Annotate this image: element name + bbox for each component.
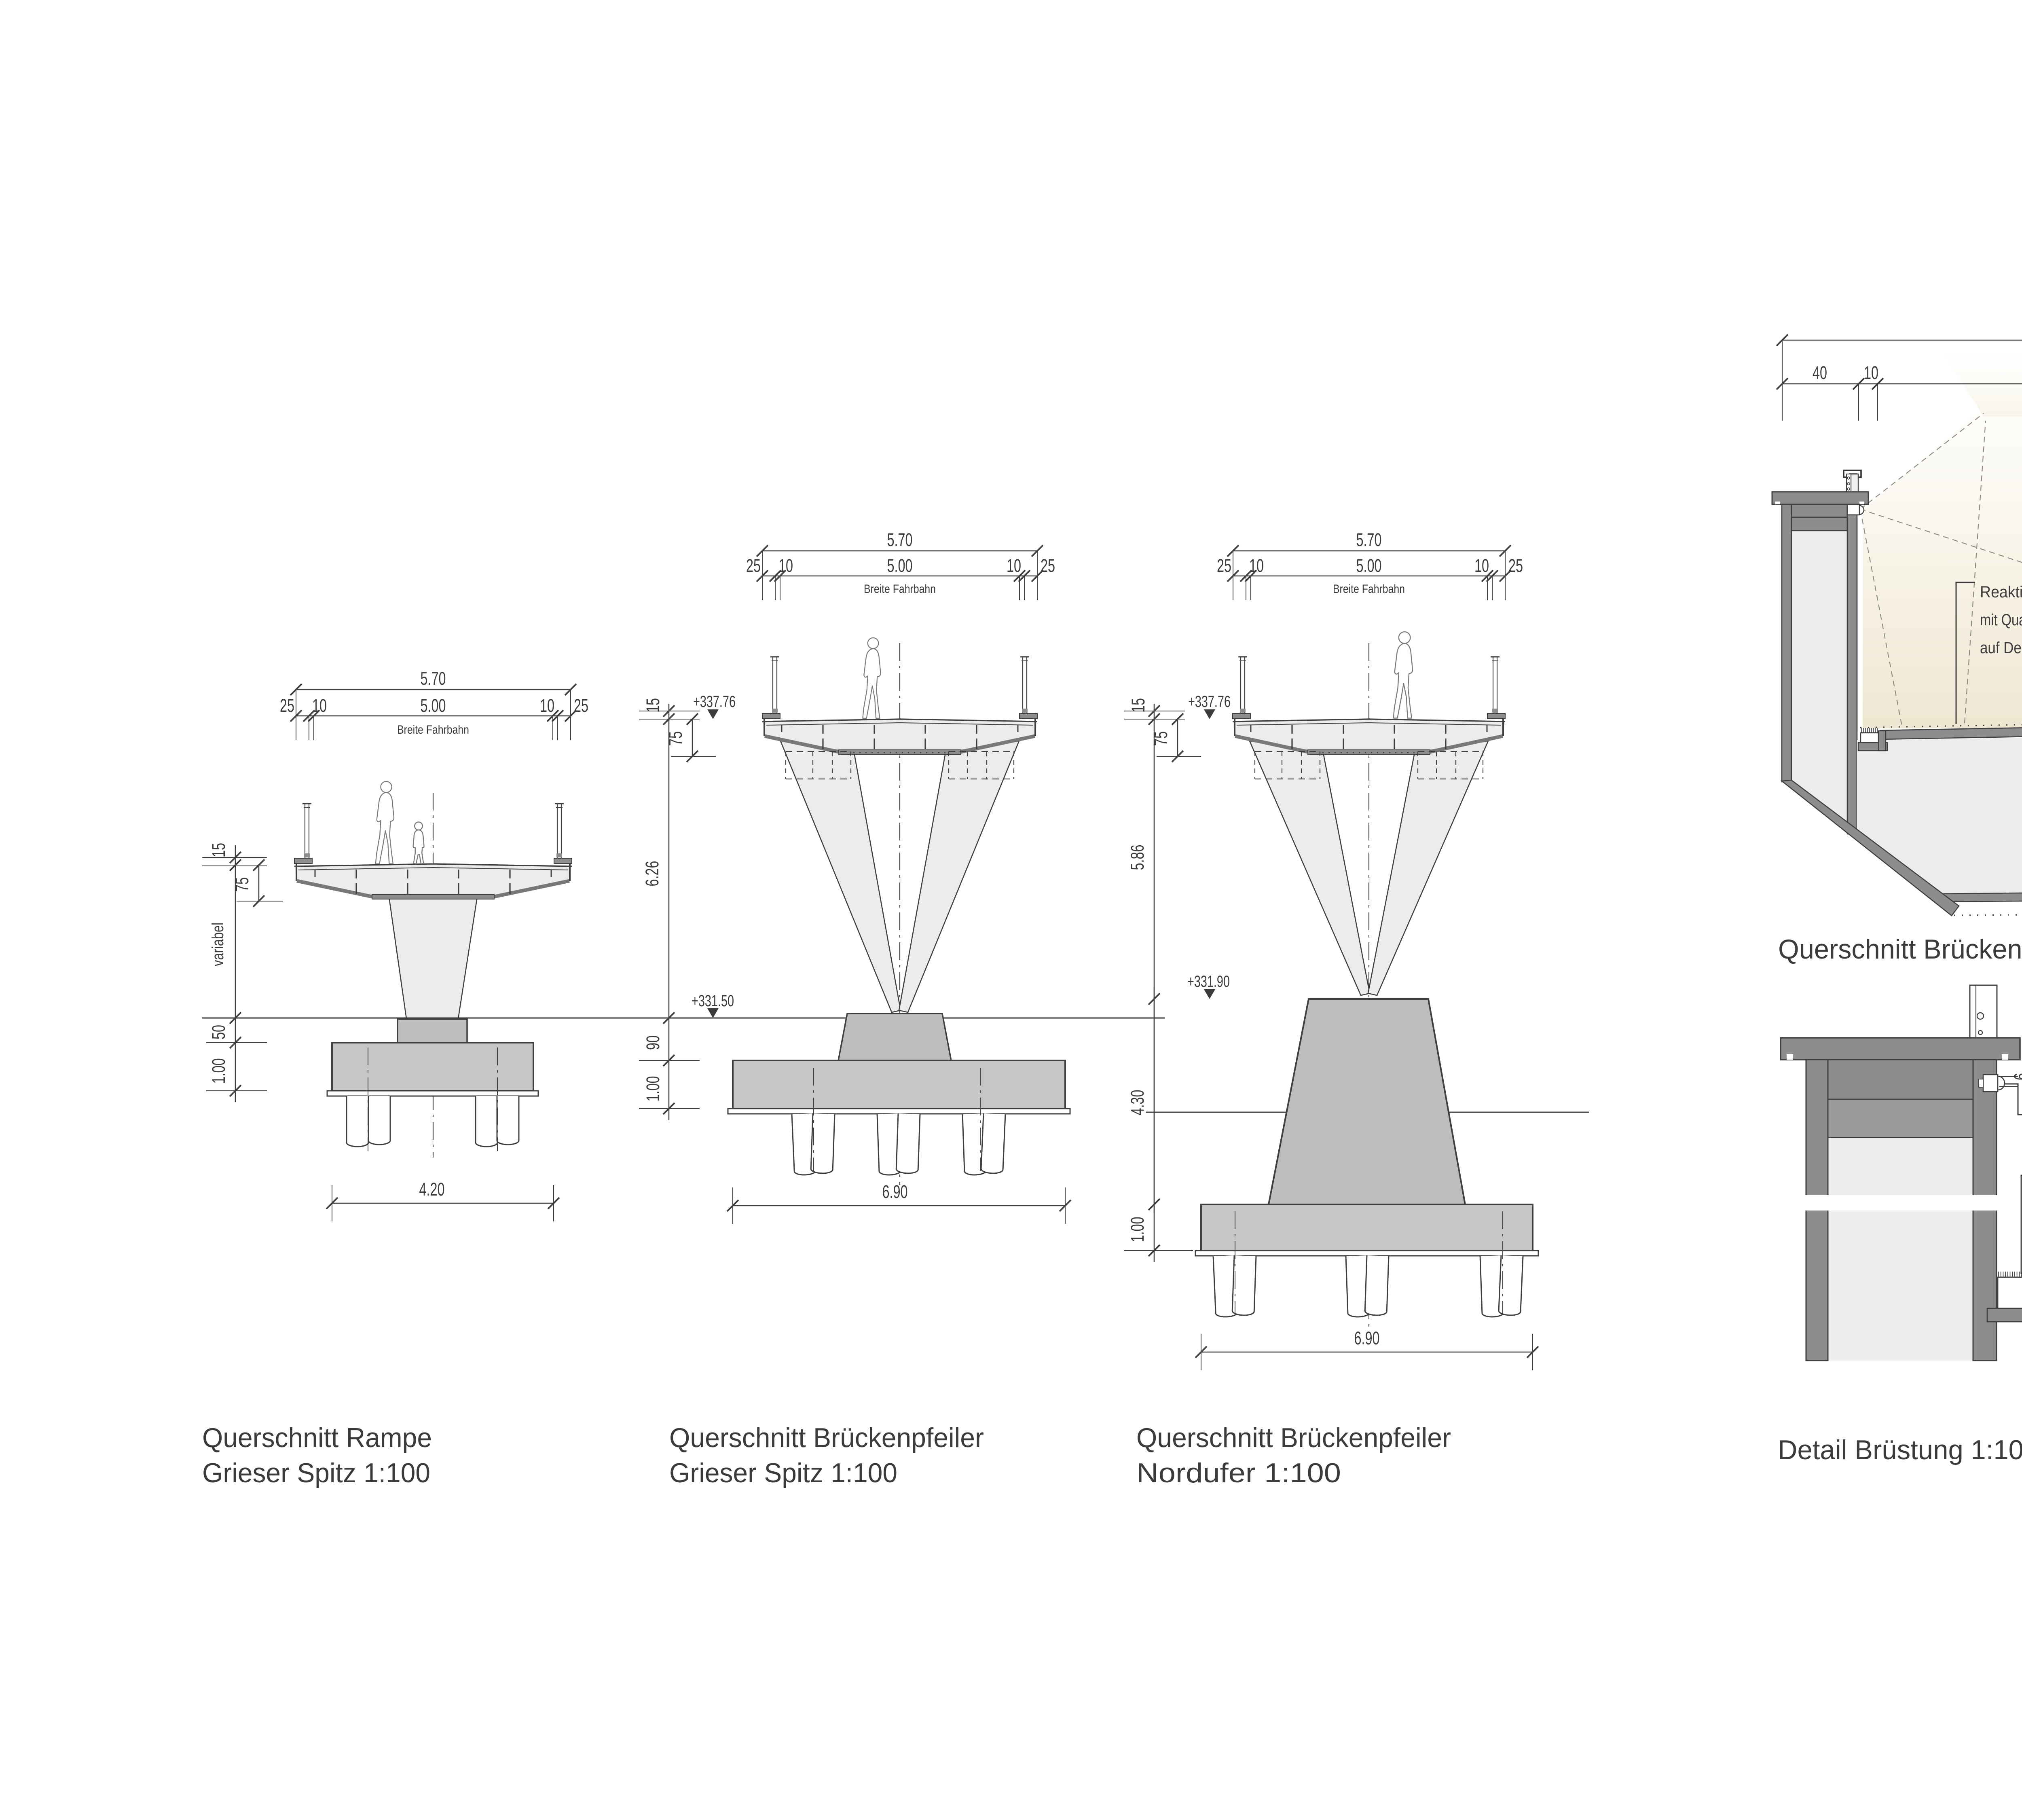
svg-text:5.00: 5.00	[1356, 555, 1382, 576]
svg-text:40: 40	[1813, 362, 1827, 383]
svg-text:5.86: 5.86	[1127, 845, 1148, 870]
svg-text:15: 15	[208, 843, 229, 857]
svg-text:+331.50: +331.50	[692, 992, 734, 1010]
svg-text:Grieser Spitz 1:100: Grieser Spitz 1:100	[202, 1458, 430, 1488]
svg-text:5.70: 5.70	[1356, 529, 1382, 550]
svg-text:75: 75	[665, 731, 686, 746]
svg-text:5.70: 5.70	[887, 529, 913, 550]
svg-text:+331.90: +331.90	[1187, 973, 1230, 990]
svg-text:10: 10	[1864, 362, 1878, 383]
svg-text:25: 25	[1217, 555, 1231, 576]
svg-text:Detail Brüstung 1:10: Detail Brüstung 1:10	[1778, 1435, 2022, 1465]
svg-text:15: 15	[643, 698, 663, 713]
svg-text:75: 75	[1151, 731, 1171, 746]
svg-text:Querschnitt Brückenpfeiler: Querschnitt Brückenpfeiler	[669, 1422, 984, 1453]
svg-text:6.90: 6.90	[882, 1181, 908, 1202]
svg-text:5.00: 5.00	[887, 555, 913, 576]
svg-text:6.26: 6.26	[642, 861, 662, 887]
svg-text:25: 25	[574, 695, 588, 716]
svg-text:auf Deckblech: auf Deckblech	[1980, 639, 2022, 657]
svg-text:Querschnitt Brückenmitte 1:25: Querschnitt Brückenmitte 1:25	[1778, 934, 2022, 965]
svg-text:Querschnitt Brückenpfeiler: Querschnitt Brückenpfeiler	[1136, 1422, 1451, 1453]
svg-text:10: 10	[540, 695, 554, 716]
svg-text:variabel: variabel	[209, 923, 227, 966]
svg-text:+337.76: +337.76	[693, 693, 736, 711]
svg-text:Breite Fahrbahn: Breite Fahrbahn	[864, 582, 936, 596]
svg-text:10: 10	[1249, 555, 1264, 576]
svg-text:+337.76: +337.76	[1188, 693, 1231, 711]
svg-text:Querschnitt Rampe: Querschnitt Rampe	[202, 1422, 432, 1453]
svg-text:10: 10	[1007, 555, 1021, 576]
svg-text:25: 25	[1508, 555, 1523, 576]
svg-text:5.70: 5.70	[421, 668, 446, 689]
svg-text:90: 90	[643, 1035, 663, 1050]
svg-text:Reaktionsharzgebundener Dünnbe: Reaktionsharzgebundener Dünnbelag (RHD)	[1980, 583, 2022, 601]
svg-text:50: 50	[208, 1025, 229, 1039]
svg-text:Grieser Spitz 1:100: Grieser Spitz 1:100	[669, 1458, 897, 1488]
svg-text:Breite Fahrbahn: Breite Fahrbahn	[1333, 582, 1405, 596]
svg-text:25: 25	[746, 555, 761, 576]
svg-text:10: 10	[312, 695, 327, 716]
svg-text:4.20: 4.20	[419, 1179, 445, 1200]
svg-text:Nordufer 1:100: Nordufer 1:100	[1136, 1458, 1341, 1488]
svg-text:1.00: 1.00	[643, 1076, 663, 1102]
svg-text:Breite Fahrbahn: Breite Fahrbahn	[397, 723, 469, 736]
svg-text:75: 75	[232, 877, 252, 892]
svg-text:1.00: 1.00	[1127, 1217, 1148, 1242]
svg-text:10: 10	[778, 555, 793, 576]
svg-text:25: 25	[280, 695, 294, 716]
svg-text:10: 10	[1474, 555, 1489, 576]
svg-text:6: 6	[2010, 1073, 2022, 1080]
svg-text:mit Quarzsandeinstreuung: mit Quarzsandeinstreuung	[1980, 611, 2022, 629]
svg-text:15: 15	[1128, 698, 1148, 713]
svg-text:4.30: 4.30	[1127, 1090, 1148, 1115]
svg-text:5.00: 5.00	[421, 695, 446, 716]
svg-text:6.90: 6.90	[1354, 1328, 1380, 1348]
svg-text:1.00: 1.00	[208, 1058, 229, 1084]
svg-text:25: 25	[1041, 555, 1055, 576]
